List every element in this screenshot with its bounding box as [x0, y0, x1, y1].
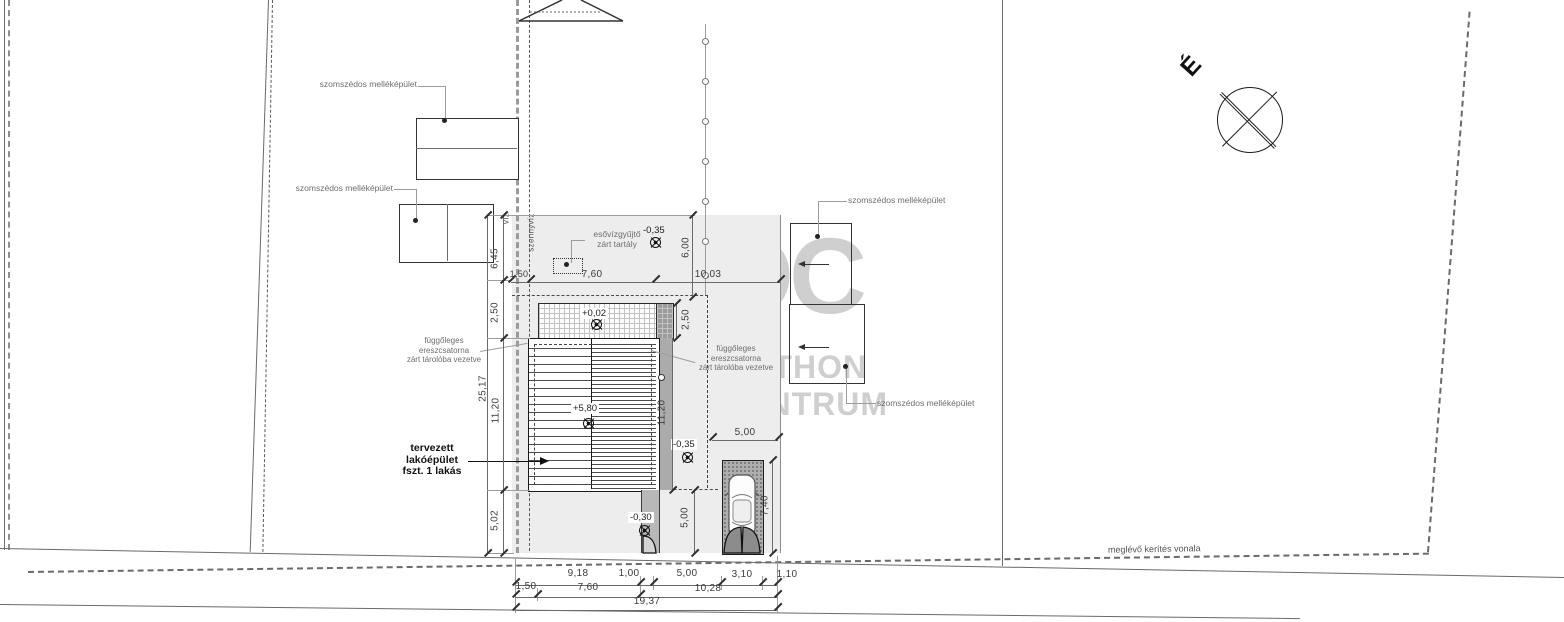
dim-bottom-r1-3: 5,00: [667, 568, 707, 579]
dim-extension-line: [487, 490, 530, 491]
dim-bottom-r1-2: 1,00: [609, 568, 649, 579]
site-plan-drawing: OC OTTHON CENTRUM meglévő kerítés vonala…: [0, 0, 1564, 622]
dim-tick: [774, 603, 782, 611]
hip-roof-building: [505, 0, 635, 26]
planned-house-roof: [528, 338, 660, 492]
elevation-marker-icon: [591, 319, 602, 330]
boundary-post-icon: [702, 158, 709, 165]
utility-sewer-label: szennyvíz: [527, 213, 536, 253]
dim-left-3: 11,20: [491, 391, 502, 431]
dim-extension-line: [487, 338, 530, 339]
existing-fence-label: meglévő kerítés vonala: [1108, 544, 1201, 555]
neighbor-building-bottom-left-divider: [447, 204, 448, 261]
boundary-post-icon: [702, 78, 709, 85]
dim-line-right-house: [672, 338, 673, 490]
dim-right-terrace: 2,50: [681, 300, 692, 340]
elevation-yard-upper: -0,35: [641, 225, 667, 236]
planned-building-label: tervezett lakóépület fszt. 1 lakás: [398, 443, 466, 478]
dim-tick: [774, 590, 782, 598]
neighbor-label-bottom-right: szomszédos melléképület: [877, 399, 974, 409]
driveway-gate-arcs: [722, 524, 762, 554]
dim-bottom-total: 19,37: [627, 596, 667, 607]
dim-right-front: 5,00: [680, 498, 691, 538]
dim-line-right-terrace: [676, 303, 677, 338]
planned-label-line1: tervezett: [398, 443, 466, 455]
dim-line-parking-depth: [772, 460, 773, 553]
leader-line: [846, 368, 847, 404]
roof-eaves-dashed: [534, 344, 652, 485]
leader-line: [418, 86, 446, 87]
terrace-grid-dark-strip: [656, 303, 674, 340]
leader-dot: [442, 118, 447, 123]
dim-line-top: [511, 282, 780, 283]
gutter-label-left-line3: zárt tárolóba vezetve: [398, 355, 490, 365]
dim-bottom-r2-1: 1,50: [506, 581, 546, 592]
elevation-marker-icon: [650, 237, 661, 248]
neighbor-building-top-left-divider: [416, 148, 517, 149]
dim-right-depth: 6,00: [681, 228, 692, 268]
dim-parking-depth: 7,40: [760, 486, 771, 526]
dim-left-2: 2,50: [490, 293, 501, 333]
dim-line-bottom-row1: [515, 585, 777, 586]
leader-dot: [815, 234, 820, 239]
leader-dot: [843, 364, 848, 369]
leader-line: [394, 189, 417, 190]
gutter-label-right-line3: zárt tárolóba vezetve: [692, 363, 780, 373]
dim-bottom-r1-5: 1,10: [767, 569, 807, 580]
dim-top-1: 1,50: [504, 269, 534, 279]
boundary-post-icon: [702, 238, 709, 245]
leader-dot: [413, 218, 418, 223]
entrance-arrowhead-icon: [798, 344, 805, 350]
dim-line-parking-width: [712, 440, 778, 441]
dim-bottom-r1-1: 9,18: [558, 568, 598, 579]
entry-gate-arc: [641, 534, 658, 554]
gutter-label-left-line1: függőleges: [398, 336, 490, 346]
dim-line-right-depth: [692, 215, 693, 297]
boundary-line-left-solid: [4, 0, 5, 550]
dim-top-3: 10,03: [688, 269, 728, 280]
dim-bottom-r2-2: 7,60: [568, 582, 608, 593]
yard-boundary-dashed-horizontal: [512, 295, 708, 296]
north-label: É: [1175, 51, 1208, 83]
neighbor-label-top-right: szomszédos melléképület: [848, 196, 945, 206]
dim-bottom-r1-4: 3,10: [722, 569, 762, 580]
yard-boundary-dashed-vertical: [707, 295, 708, 488]
leader-line: [416, 189, 417, 220]
elevation-marker-icon: [583, 418, 594, 429]
planned-label-line3: fszt. 1 lakás: [398, 466, 466, 478]
dim-top-2: 7,60: [572, 269, 612, 280]
dim-right-house: 11,20: [657, 393, 668, 433]
dim-left-1: 6,45: [490, 239, 501, 279]
gutter-label-right: függőleges ereszcsatorna zárt tárolóba v…: [692, 344, 780, 373]
dim-line-left: [503, 215, 504, 553]
dim-parking-width: 5,00: [725, 427, 765, 438]
leader-line: [468, 461, 540, 462]
elevation-marker-icon: [682, 452, 693, 463]
downspout-icon: [658, 374, 665, 381]
neighbor-building-top-left: [416, 118, 519, 180]
elevation-ridge: +5,80: [571, 403, 599, 414]
gutter-label-left: függőleges ereszcsatorna zárt tárolóba v…: [398, 336, 490, 365]
leader-arrowhead-icon: [540, 457, 549, 465]
entrance-arrow-top-right: [803, 264, 829, 265]
dim-left-total: 25,17: [478, 369, 489, 409]
neighbor-label-top-left: szomszédos melléképület: [307, 80, 417, 90]
leader-line: [571, 240, 572, 263]
dim-line-right-front: [694, 490, 695, 553]
leader-dot: [564, 262, 569, 267]
elevation-entry: -0,30: [628, 512, 654, 523]
leader-line: [818, 201, 819, 237]
boundary-post-icon: [702, 38, 709, 45]
plot-divider-line: [1002, 0, 1003, 566]
elevation-marker-icon: [639, 525, 650, 536]
dim-left-4: 5,02: [490, 501, 501, 541]
boundary-post-icon: [702, 118, 709, 125]
gutter-label-left-line2: ereszcsatorna: [398, 346, 490, 356]
boundary-line-left-dashed: [8, 0, 10, 550]
dim-bottom-r2-3: 10,28: [688, 583, 728, 594]
boundary-line-2-dashed: [262, 0, 273, 552]
leader-line: [445, 86, 446, 120]
leader-line: [571, 240, 585, 241]
dim-extension-line: [487, 215, 695, 216]
gutter-label-right-line1: függőleges: [692, 344, 780, 354]
entrance-arrowhead-icon: [798, 261, 805, 267]
elevation-terrace: +0,02: [580, 308, 608, 319]
elevation-yard-lower: -0,35: [671, 439, 697, 450]
boundary-post-icon: [702, 198, 709, 205]
rainwater-tank-label-line2: zárt tartály: [584, 240, 650, 250]
neighbor-label-bottom-left: szomszédos melléképület: [293, 184, 393, 194]
dim-line-bottom-total: [515, 610, 777, 611]
gutter-label-right-line2: ereszcsatorna: [692, 354, 780, 364]
entrance-arrow-bottom-right: [803, 347, 829, 348]
existing-fence-dashed-line-right: [1427, 12, 1471, 553]
leader-line: [846, 403, 876, 404]
boundary-line-2-solid: [250, 0, 269, 552]
leader-line: [818, 201, 847, 202]
